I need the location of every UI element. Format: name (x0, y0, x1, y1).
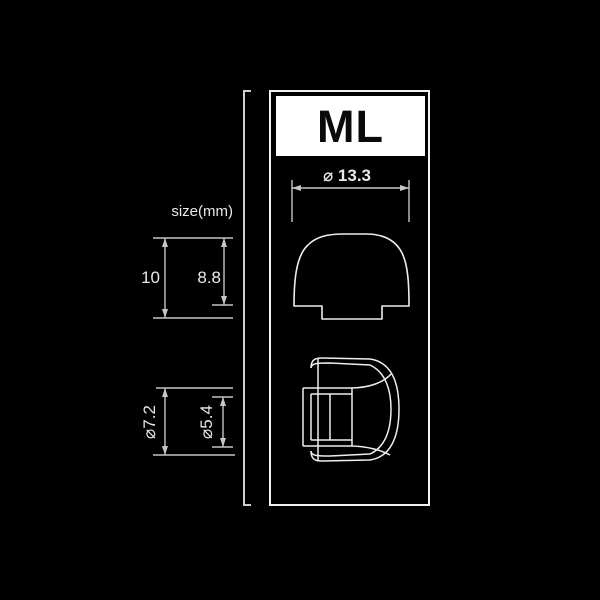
umbrella-diameter-dimension (292, 180, 409, 222)
eartip-spec-panel: ML ⌀ 13.3 size(mm) 10 8.8 ⌀7.2 ⌀5.4 (0, 0, 600, 600)
core-inner-diameter-label: ⌀5.4 (198, 386, 218, 458)
core-outer-diameter-label: ⌀7.2 (141, 386, 161, 458)
eartip-side-view-figure (294, 234, 409, 319)
size-badge-label: ML (317, 104, 384, 149)
left-bracket (244, 91, 251, 505)
umbrella-diameter-label: ⌀ 13.3 (297, 167, 397, 184)
unit-label: size(mm) (123, 204, 233, 219)
diagram-canvas (0, 0, 600, 600)
total-height-label: 10 (118, 269, 160, 286)
eartip-front-view-figure (303, 358, 399, 461)
core-diameter-dimensions (153, 388, 235, 455)
umbrella-height-label: 8.8 (178, 269, 221, 286)
size-badge: ML (276, 96, 425, 156)
